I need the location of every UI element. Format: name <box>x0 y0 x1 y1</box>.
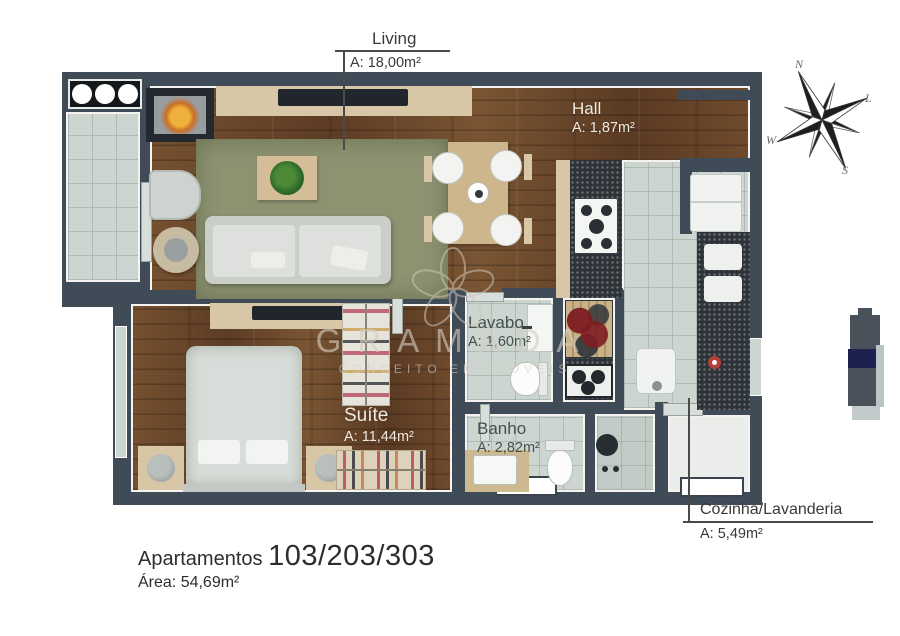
sofa-seat-left <box>213 225 295 277</box>
wall-lavabo-banho-l <box>452 402 478 414</box>
living-leader-h <box>335 50 450 52</box>
table-centerpiece <box>467 182 489 204</box>
chair-back <box>524 154 532 180</box>
cozinha-name: Cozinha/Lavanderia <box>700 500 842 520</box>
suite-area: A: 11,44m² <box>344 428 414 446</box>
dining-chair <box>490 150 522 182</box>
hall-area: A: 1,87m² <box>572 119 635 137</box>
chair-back <box>424 156 432 182</box>
cozinha-label: Cozinha/Lavanderia <box>700 500 842 520</box>
tv-suite <box>252 306 344 320</box>
shower-control <box>602 466 608 472</box>
burner <box>601 205 612 216</box>
dining-chair <box>432 212 464 244</box>
hall-bulkhead <box>678 90 750 100</box>
living-area: A: 18,00m² <box>350 54 421 72</box>
banho-area: A: 2,82m² <box>477 439 540 457</box>
cozinha-leader-h <box>683 521 873 523</box>
red-accent-center <box>712 360 717 365</box>
wall-fridge-nook-h <box>683 158 762 172</box>
appliance-knob <box>581 381 595 395</box>
building-top <box>850 315 880 349</box>
burner <box>581 238 592 249</box>
side-table <box>153 227 199 273</box>
counter-right <box>697 232 750 410</box>
machine-dial <box>652 381 662 391</box>
sink-basin <box>704 244 742 270</box>
apartment-numbers: 103/203/303 <box>268 540 435 572</box>
wardrobe-horizontal <box>336 450 426 490</box>
lamp <box>147 454 175 482</box>
watermark-brand: GRAMADA <box>300 322 610 360</box>
chair-back <box>524 218 532 244</box>
compass-east-label: L <box>864 91 872 105</box>
dining-chair <box>490 214 522 246</box>
fireplace-fire <box>154 96 206 134</box>
compass-north-label: N <box>794 57 804 71</box>
sofa-pillow <box>251 252 285 268</box>
bed-headboard <box>183 484 305 492</box>
burner <box>589 219 604 234</box>
wall-lavabo-banho-r <box>508 402 623 414</box>
ceiling-spots-panel <box>68 79 142 109</box>
compass-west-label: W <box>766 133 777 147</box>
banho-label: Banho A: 2,82m² <box>477 418 540 457</box>
fridge-divider <box>691 201 741 203</box>
shower-control <box>613 466 619 472</box>
spot-circle <box>72 84 92 104</box>
wall-pantry-right <box>615 290 624 412</box>
cozinha-area-label: A: 5,49m² <box>700 525 763 543</box>
nightstand <box>138 446 184 490</box>
dining-chair <box>432 152 464 184</box>
balcony-floor <box>66 112 140 282</box>
plant <box>270 161 304 195</box>
armchair <box>149 170 201 220</box>
burner <box>581 205 592 216</box>
spot-circle <box>118 84 138 104</box>
fridge <box>690 174 742 232</box>
sink-basin <box>704 276 742 302</box>
apartments-prefix: Apartamentos <box>138 548 263 570</box>
building-band <box>848 349 876 368</box>
pillow <box>246 440 288 464</box>
hall-name: Hall <box>572 98 635 119</box>
cozinha-leader-v <box>688 398 690 522</box>
banho-sink <box>473 455 517 485</box>
burner <box>601 238 612 249</box>
suite-name: Suíte <box>344 404 414 428</box>
living-area-label: A: 18,00m² <box>350 54 421 72</box>
pillow <box>198 440 240 464</box>
living-label: Living <box>372 28 416 49</box>
compass-rose-icon: N L S W <box>762 52 882 182</box>
washing-machine <box>636 348 676 394</box>
building-edge <box>876 345 884 407</box>
hall-label: Hall A: 1,87m² <box>572 98 635 137</box>
floor-plan-page: Living A: 18,00m² Hall A: 1,87m² Lavabo … <box>0 0 900 636</box>
chair-back <box>424 216 432 242</box>
suite-label: Suíte A: 11,44m² <box>344 404 414 446</box>
cozinha-area: A: 5,49m² <box>700 525 763 543</box>
apartments-title: Apartamentos 103/203/303 <box>138 540 435 573</box>
red-accent-item <box>708 356 721 369</box>
fireplace <box>146 88 214 142</box>
compass-south-label: S <box>842 163 848 177</box>
shower-head <box>596 434 618 456</box>
banho-name: Banho <box>477 418 540 439</box>
bed <box>186 346 302 486</box>
spot-circle <box>95 84 115 104</box>
total-area: Área: 54,69m² <box>138 574 435 592</box>
service-door-sill <box>748 338 762 396</box>
wall-banho-shower <box>585 412 595 492</box>
centerpiece-dot <box>475 190 483 198</box>
footer-title-block: Apartamentos 103/203/303 Área: 54,69m² <box>138 540 435 592</box>
side-table-top <box>164 238 188 262</box>
living-leader-v <box>343 50 345 150</box>
appliance-knob <box>591 370 605 384</box>
watermark-tagline: CONCEITO EM IMÓVEIS <box>330 362 580 376</box>
banho-toilet <box>547 450 573 486</box>
suite-window <box>115 326 127 458</box>
sofa <box>205 216 391 284</box>
cooktop <box>574 198 618 254</box>
building-key-icon <box>846 308 886 422</box>
living-name: Living <box>372 28 416 49</box>
counter-left-edge <box>556 160 570 298</box>
building-base <box>852 406 880 420</box>
